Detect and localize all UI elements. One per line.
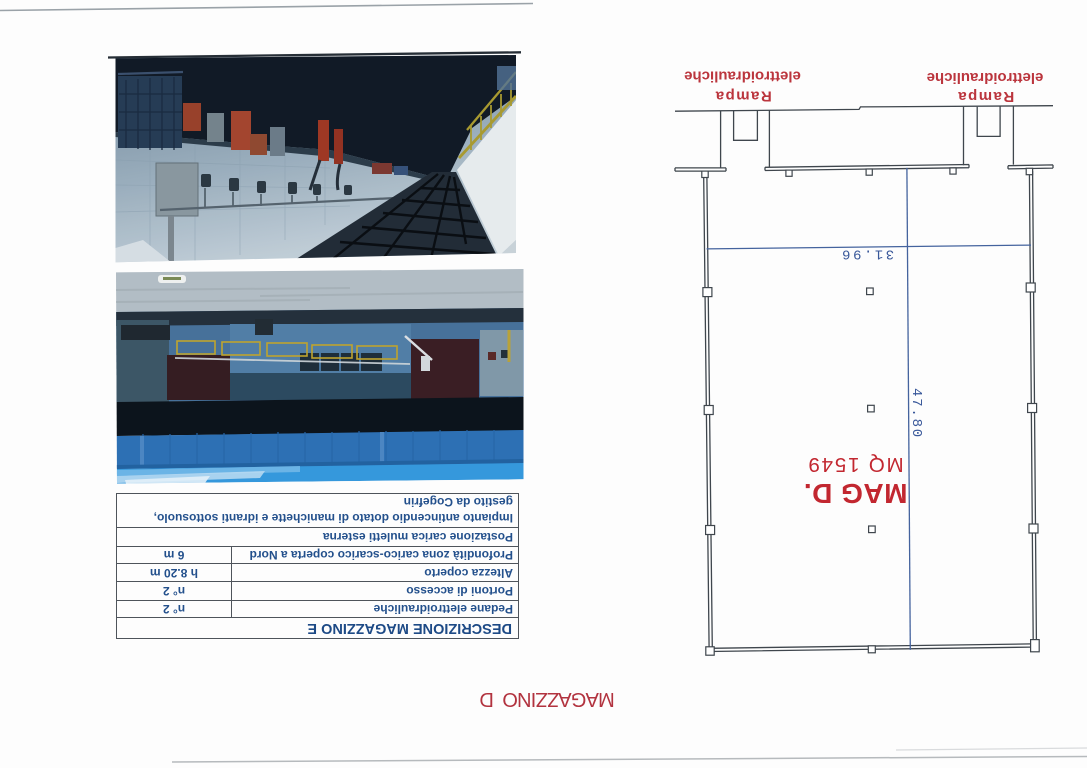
svg-text:Rampa: Rampa — [957, 88, 1015, 105]
svg-text:elettroidrauliche: elettroidrauliche — [684, 68, 801, 85]
svg-text:elettroidrauliche: elettroidrauliche — [927, 69, 1044, 86]
svg-text:MQ 1549: MQ 1549 — [807, 453, 904, 476]
svg-text:Rampa: Rampa — [714, 87, 772, 104]
svg-text:MAG D.: MAG D. — [803, 478, 907, 509]
svg-text:47.80: 47.80 — [908, 388, 924, 439]
svg-text:31.96: 31.96 — [840, 245, 895, 261]
